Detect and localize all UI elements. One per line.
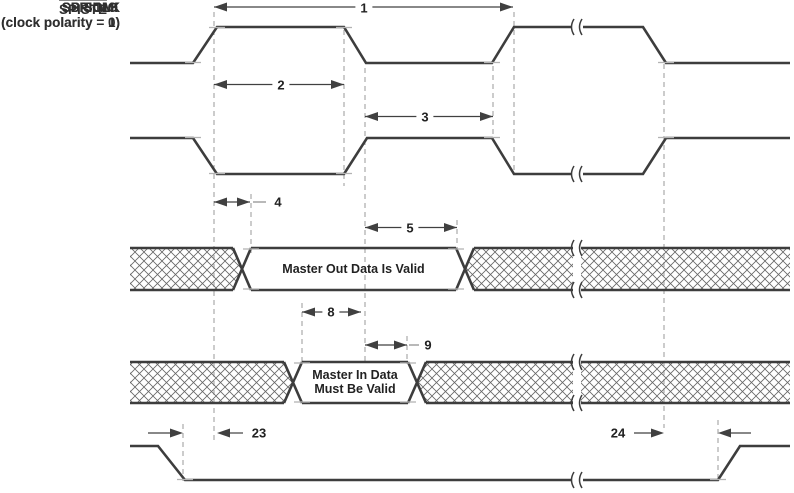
timing-annotation-23: 23 bbox=[247, 426, 271, 441]
spiste-name: SPISTE bbox=[59, 0, 107, 17]
spisomi-valid-line1: Master In Data bbox=[302, 368, 408, 382]
timing-annotation-24: 24 bbox=[606, 426, 630, 441]
spisomi-valid-line2: Must Be Valid bbox=[302, 382, 408, 396]
spiste-waveform bbox=[130, 446, 790, 480]
dashed-guides bbox=[183, 12, 718, 481]
timing-annotation-5: 5 bbox=[401, 221, 418, 236]
waveform-canvas bbox=[0, 0, 794, 493]
spisimo-bus bbox=[130, 248, 790, 290]
spiclk-pol0-waveform bbox=[130, 27, 790, 63]
spi-timing-diagram: SPICLK (clock polarity = 0) SPICLK (cloc… bbox=[0, 0, 794, 493]
signal-label-spiste: SPISTE bbox=[0, 0, 107, 17]
timing-annotation-1: 1 bbox=[355, 1, 372, 16]
timing-annotation-3: 3 bbox=[416, 110, 433, 125]
timing-annotation-9: 9 bbox=[419, 338, 436, 353]
spisomi-valid-label: Master In Data Must Be Valid bbox=[302, 368, 408, 396]
break-marks bbox=[571, 19, 583, 488]
spiclk-pol1-waveform bbox=[130, 138, 790, 174]
spisimo-valid-label: Master Out Data Is Valid bbox=[251, 262, 456, 276]
timing-annotation-8: 8 bbox=[322, 305, 339, 320]
spisomi-bus bbox=[130, 362, 790, 403]
timing-annotation-4: 4 bbox=[269, 195, 286, 210]
timing-annotation-2: 2 bbox=[272, 78, 289, 93]
spiclk-pol1-qualifier: (clock polarity = 1) bbox=[0, 15, 120, 30]
